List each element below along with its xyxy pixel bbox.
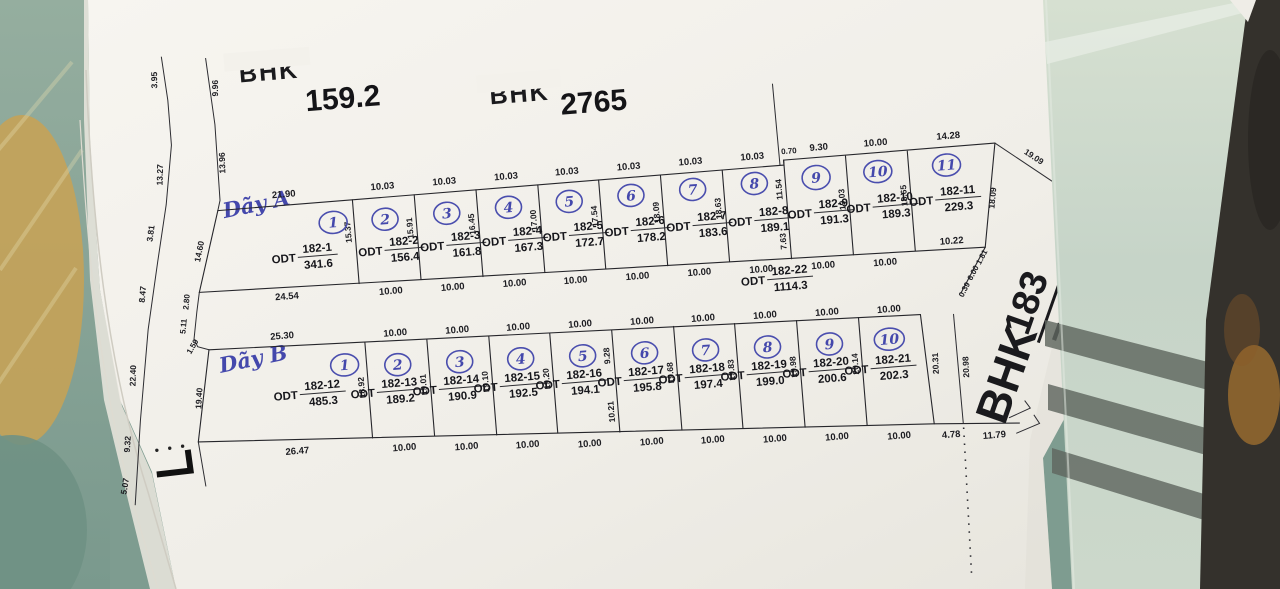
plot-code: ODT xyxy=(542,231,567,245)
dim-label: 25.30 xyxy=(270,330,295,343)
plot-id: 182-5 xyxy=(573,220,604,234)
plot-code: ODT xyxy=(597,376,622,390)
plot-number: 9 xyxy=(824,337,835,354)
dim-label: 10.03 xyxy=(616,161,641,174)
plot-number: 3 xyxy=(441,206,452,223)
dim-label: 10.00 xyxy=(753,309,778,322)
cadastral-plan-svg: BHK 159.2 BHK 2765 3.95 13.27 3.81 8.47 … xyxy=(0,0,1280,589)
plot-id: 182-9 xyxy=(818,197,848,211)
plot-number: 5 xyxy=(577,348,588,365)
plot-code: ODT xyxy=(350,388,375,402)
plot-code: ODT xyxy=(535,379,560,393)
plot-number: 9 xyxy=(811,170,822,187)
dim-label: 4.78 xyxy=(942,429,961,441)
plot-code: ODT xyxy=(720,370,745,384)
dim-label: 10.03 xyxy=(555,166,580,179)
plot-code: ODT xyxy=(658,373,683,387)
plot-area: 229.3 xyxy=(944,200,974,214)
plot-area: 197.4 xyxy=(694,378,724,392)
plot-code: ODT xyxy=(412,385,437,399)
dim-label: 9.28 xyxy=(601,347,612,365)
dim-label: 18.09 xyxy=(986,187,998,209)
dim-label: 9.30 xyxy=(809,142,828,154)
dim-label: 0.70 xyxy=(781,146,798,156)
plot-area: 189.1 xyxy=(760,221,790,235)
dim-label: 26.47 xyxy=(285,445,310,458)
plot-id: 182-2 xyxy=(389,235,419,249)
plot-number: 1 xyxy=(328,215,339,232)
plot-code: ODT xyxy=(844,364,869,378)
plot-area: 156.4 xyxy=(390,251,420,265)
dim-label: 11.79 xyxy=(982,429,1006,442)
dim-label: 20.31 xyxy=(930,352,941,374)
dim-label: 2.80 xyxy=(181,293,191,310)
dim-label: 10.00 xyxy=(563,274,588,287)
plot-number: 2 xyxy=(379,212,391,229)
dim-label: 10.00 xyxy=(691,312,716,325)
dim-label: 10.21 xyxy=(605,400,617,422)
plot-code: ODT xyxy=(728,216,753,230)
granite-patch xyxy=(1224,294,1260,366)
neighbor-area: 159.2 xyxy=(304,79,381,118)
plot-number: 6 xyxy=(639,345,650,362)
plot-id: 182-8 xyxy=(759,205,790,219)
dim-label: 10.00 xyxy=(749,263,774,276)
plot-area: 200.6 xyxy=(817,372,847,386)
plot-code: ODT xyxy=(273,390,298,404)
dim-label: 10.00 xyxy=(454,440,479,453)
plot-area: 183.6 xyxy=(698,226,728,240)
foreground-right xyxy=(1043,0,1280,589)
plot-code: ODT xyxy=(420,241,445,255)
dim-label: 3.95 xyxy=(149,72,159,89)
plot-id: 182-6 xyxy=(635,215,665,229)
dim-label: 10.00 xyxy=(502,277,527,290)
dim-label: 20.98 xyxy=(960,356,971,378)
dim-label: 10.00 xyxy=(825,431,850,444)
plot-area: 189.2 xyxy=(386,392,416,406)
plot-area: 199.0 xyxy=(756,375,786,389)
dim-label: 19.40 xyxy=(193,387,204,409)
plot-number: 11 xyxy=(936,157,957,175)
dim-label: 10.00 xyxy=(815,306,840,319)
plot-area: 167.3 xyxy=(514,241,544,255)
plot-id: 182-7 xyxy=(697,210,727,224)
dim-label: 10.00 xyxy=(811,259,836,272)
plot-code: ODT xyxy=(604,226,629,240)
dim-label: 10.00 xyxy=(506,321,531,334)
plot-area: 161.8 xyxy=(452,246,482,260)
plot-area: 189.3 xyxy=(881,207,911,221)
plot-code: ODT xyxy=(846,202,871,216)
dim-label: 9.96 xyxy=(210,80,220,97)
neighbor-area: 2765 xyxy=(559,83,628,121)
plot-area: 178.2 xyxy=(637,231,667,245)
dim-label: 8.47 xyxy=(137,285,149,303)
plot-number: 6 xyxy=(626,188,637,205)
plot-code: ODT xyxy=(358,246,383,260)
plot-area: 341.6 xyxy=(304,258,334,272)
dim-label: 14.28 xyxy=(936,130,961,143)
dim-label: 10.00 xyxy=(630,315,655,328)
dim-label: 10.03 xyxy=(494,170,519,183)
plot-area: 202.3 xyxy=(879,369,909,383)
plot-code: ODT xyxy=(271,253,296,267)
dim-label: 10.00 xyxy=(877,303,902,316)
plot-number: 4 xyxy=(503,200,514,217)
plot-number: 10 xyxy=(868,164,889,182)
plot-number: 4 xyxy=(515,351,526,368)
dim-label: 10.03 xyxy=(432,175,457,188)
dim-label: 10.00 xyxy=(440,281,465,294)
dim-label: 10.22 xyxy=(939,235,964,248)
plot-number: 10 xyxy=(879,331,900,349)
dim-label: 10.03 xyxy=(678,156,703,169)
dim-label: 10.00 xyxy=(873,256,898,269)
plot-number: 8 xyxy=(762,340,773,357)
dim-label: 10.00 xyxy=(445,324,470,337)
dim-label: 10.03 xyxy=(740,151,765,164)
dim-label: 11.54 xyxy=(773,179,785,201)
dim-label: 10.00 xyxy=(887,430,912,443)
dim-label: 10.00 xyxy=(515,439,540,452)
dim-label: 10.00 xyxy=(639,436,664,449)
plot-area: 194.1 xyxy=(571,384,601,398)
plot-number: 7 xyxy=(700,343,711,360)
plot-number: 1 xyxy=(339,358,350,375)
plot-code: ODT xyxy=(741,275,766,289)
plot-id: 182-1 xyxy=(302,242,333,256)
plot-code: ODT xyxy=(482,236,507,250)
dim-label: 10.00 xyxy=(383,327,408,340)
dim-label: 13.27 xyxy=(155,164,166,186)
dim-label: 10.00 xyxy=(701,434,726,447)
dim-label: 10.00 xyxy=(379,285,404,298)
plot-area: 172.7 xyxy=(575,236,605,250)
plot-number: 3 xyxy=(454,354,465,371)
plot-number: 7 xyxy=(687,182,698,199)
plot-id: 182-3 xyxy=(451,230,481,244)
dim-label: 22.40 xyxy=(128,365,139,387)
plot-code: ODT xyxy=(787,208,812,222)
dim-label: 9.32 xyxy=(122,435,133,452)
dim-label: 10.00 xyxy=(568,318,593,331)
dim-label: 10.00 xyxy=(863,137,888,150)
plot-code: ODT xyxy=(473,382,498,396)
plot-code: ODT xyxy=(666,221,691,235)
dim-label: 10.00 xyxy=(392,441,417,454)
dim-label: 10.00 xyxy=(577,438,602,451)
plot-area: 192.5 xyxy=(509,387,539,401)
dim-label: 10.03 xyxy=(370,180,395,193)
plot-id: 182-4 xyxy=(512,225,543,239)
dim-label: 15.37 xyxy=(342,221,354,243)
plot-code: ODT xyxy=(909,195,934,209)
dim-label: 10.00 xyxy=(687,266,712,279)
dim-label: 7.63 xyxy=(777,232,788,250)
dim-label: 13.96 xyxy=(217,152,228,174)
plot-code: ODT xyxy=(782,367,807,381)
dim-label: 21.90 xyxy=(271,188,296,201)
plot-number: 8 xyxy=(749,176,760,193)
dim-label: 10.00 xyxy=(763,433,788,446)
plot-area: 191.3 xyxy=(820,213,850,227)
dim-label: 24.54 xyxy=(275,290,300,303)
photo-of-cadastral-plan: BHK 159.2 BHK 2765 3.95 13.27 3.81 8.47 … xyxy=(0,0,1280,589)
dim-label: 5.11 xyxy=(178,318,188,334)
plot-number: 2 xyxy=(391,357,403,374)
plot-area: 485.3 xyxy=(309,395,339,409)
plot-number: 5 xyxy=(564,194,575,211)
dim-label: 10.00 xyxy=(625,270,650,283)
